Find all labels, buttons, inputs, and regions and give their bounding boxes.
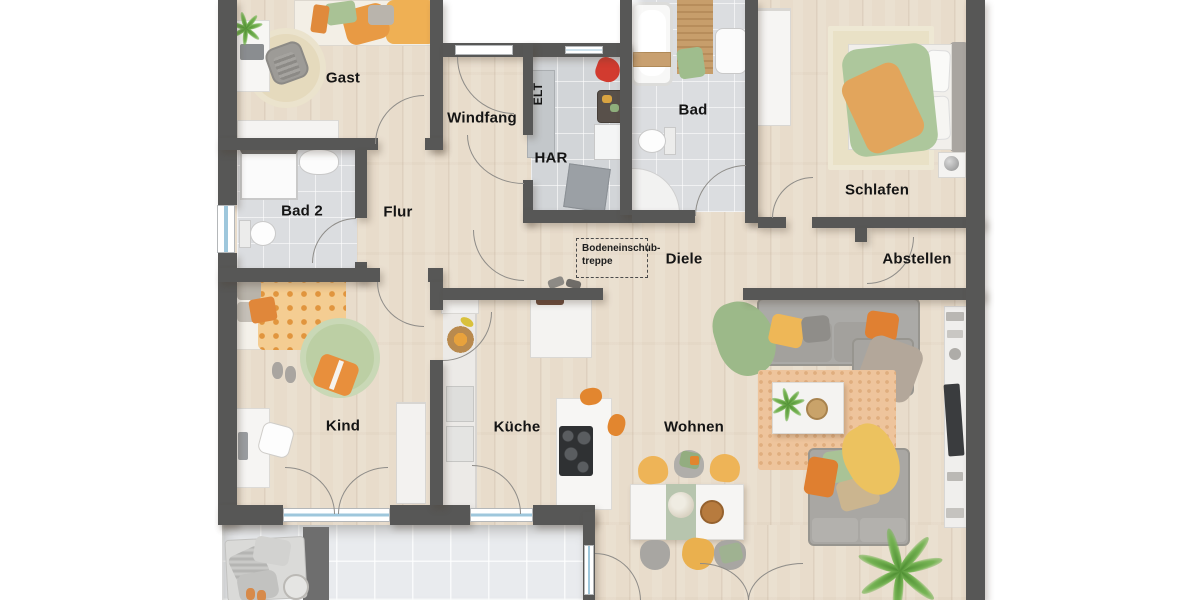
kueche-cooktop [559, 426, 593, 476]
kind-monitor [238, 432, 248, 460]
wall [812, 217, 985, 228]
wall [218, 253, 237, 525]
attic-ladder-line1: Bodeneinschub- [582, 243, 645, 256]
kind-pillow-gray1 [237, 280, 261, 300]
wall [855, 228, 867, 242]
wall [620, 0, 632, 215]
wall [743, 288, 985, 300]
kueche-fridge-lower [446, 426, 474, 462]
wall [425, 138, 443, 150]
kind-pillow-orange [248, 296, 278, 324]
gast-pillow-green [325, 0, 358, 26]
dining-chair-top2-cloth2 [690, 456, 699, 465]
bad2-toilet-bowl [250, 221, 276, 246]
attic-ladder-line2: treppe [582, 256, 645, 269]
wall [390, 505, 470, 525]
floor-plan: Bodeneinschub- treppe Gast Windfang ELT … [0, 0, 1200, 600]
wall [430, 360, 443, 505]
room-label-diele: Diele [666, 252, 703, 267]
schlafen-wardrobe [757, 8, 791, 126]
sideboard-books2 [947, 330, 963, 338]
wohnen-sofa-bottom-seat2 [860, 518, 906, 542]
sideboard-books4 [946, 508, 964, 518]
bad-tub-tray [633, 52, 671, 67]
room-label-schlafen: Schlafen [845, 183, 909, 198]
wall [523, 210, 635, 223]
room-label-flur: Flur [383, 205, 412, 220]
room-label-gast: Gast [326, 71, 360, 86]
window-wohnen-west [584, 545, 594, 595]
schlafen-lamp [944, 156, 959, 171]
room-label-har: HAR [534, 151, 567, 166]
attic-ladder-annotation: Bodeneinschub- treppe [576, 238, 648, 278]
bad-toilet-bowl [638, 129, 666, 153]
wall [218, 0, 237, 205]
wall [758, 217, 786, 228]
room-label-elt: ELT [532, 83, 544, 105]
har-laundry-item [602, 95, 612, 103]
room-label-abstellen: Abstellen [882, 252, 951, 267]
har-laundry-item2 [610, 104, 619, 112]
kind-slipper1 [272, 362, 283, 379]
room-label-bad: Bad [679, 103, 708, 118]
kind-slipper2 [285, 366, 296, 383]
room-label-kueche: Küche [494, 420, 541, 435]
gast-laptop [240, 44, 264, 60]
terrace-flipflop1 [246, 588, 255, 600]
sideboard-candle [949, 348, 961, 360]
wall [632, 210, 695, 223]
wall [355, 150, 367, 218]
bad-towel [676, 46, 706, 79]
terrace-side-table [283, 574, 309, 600]
sideboard-books3 [947, 472, 963, 481]
wall [428, 268, 443, 282]
wall [218, 268, 380, 282]
bad2-shower [240, 150, 298, 200]
wohnen-table-bowl [806, 398, 828, 420]
exterior-cutout [443, 0, 633, 44]
wall [966, 0, 985, 600]
bad2-sink [299, 149, 339, 175]
gast-sideboard [237, 120, 339, 140]
bad-sink [715, 28, 747, 74]
wall [443, 288, 603, 300]
wall [218, 138, 378, 150]
kind-wardrobe [396, 402, 426, 504]
room-label-wohnen: Wohnen [664, 420, 724, 435]
window-har-north [565, 46, 603, 54]
wall [745, 0, 758, 223]
entrance-door-panel [455, 45, 513, 55]
sideboard-books1 [946, 312, 964, 321]
terrace-flipflop2 [257, 590, 266, 600]
kueche-fridge-upper [446, 386, 474, 422]
wall [430, 282, 443, 310]
room-label-bad2: Bad 2 [281, 204, 323, 219]
wall [430, 0, 443, 150]
room-label-kind: Kind [326, 419, 360, 434]
har-storage-box [563, 163, 611, 212]
dining-chair-bottom1 [640, 540, 670, 570]
room-label-windfang: Windfang [447, 111, 517, 126]
wohnen-decor-bowl [700, 500, 724, 524]
window-bad2 [217, 205, 235, 253]
wall [218, 505, 283, 525]
wohnen-sofa-bottom-seat1 [812, 518, 858, 542]
wohnen-pillow-gray [801, 315, 832, 344]
gast-pillow-gray [368, 5, 394, 25]
wohnen-flowers [668, 492, 694, 518]
